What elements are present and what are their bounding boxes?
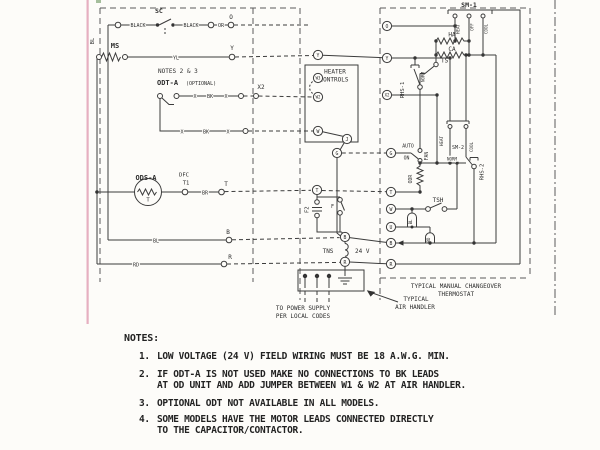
fan-label: FAN [424,152,430,161]
odt-a-label: ODT-A [157,79,179,87]
air-handler-caption-1: TYPICAL [403,296,429,303]
th-terminal-g: G [390,151,393,157]
fuse-f2 [315,200,320,205]
scan-edge-artifact [87,0,89,324]
f2-label: F2 [305,206,311,213]
f-switch [338,198,343,203]
note-text: SOME MODELS HAVE THE MOTOR LEADS CONNECT… [157,414,433,425]
sm1-cool-label: COOL [484,23,489,34]
f-label: F [331,204,334,210]
wire-label-x: X [224,94,227,100]
od-terminal [115,22,121,28]
thermostat-caption-2: THERMOSTAT [438,291,475,298]
terminal-label-r: R [228,254,232,261]
scanned-wiring-diagram-page: { "labels": { "sc": "SC", "black": "BLAC… [0,0,600,450]
note-item-3: 3. OPTIONAL ODT NOT AVAILABLE IN ALL MOD… [139,398,579,409]
scan-mark [96,0,101,3]
ms-label: MS [111,42,119,50]
ah-terminal-r: R [344,260,347,266]
thermostat-section: O Y X2 G T W U B R SM-1 HEAT OFF COOL HA… [350,1,520,298]
dfc-label: DFC [179,173,189,179]
tns-transformer-coil [345,244,348,257]
th-terminal-b: B [390,241,393,247]
odr-label: ODR [408,175,414,184]
note-text: IF ODT-A IS NOT USED MAKE NO CONNECTIONS… [157,369,466,380]
power-caption-1: TO POWER SUPPLY [276,305,331,312]
wire-label-x: X [193,94,196,100]
odt-optional-label: (OPTIONAL) [186,81,216,87]
note-number: 4. [139,414,152,436]
note-number: 1. [139,351,152,362]
terminal-label-t: T [224,181,228,188]
heater-label: HEATER [324,69,346,76]
ah-terminal-w3: W3 [316,76,321,81]
notes-title: NOTES: [124,333,159,344]
note-item-4: 4. SOME MODELS HAVE THE MOTOR LEADS CONN… [139,414,589,436]
wiring-diagram: BL BLACK SC BLACK OR O MS YL Y NOTES 2 &… [0,0,600,324]
terminal-label-x2: X2 [257,84,265,91]
sm1-heat-label: HEAT [456,23,461,34]
wire-label-black: BLACK [130,23,145,29]
section-boundaries [100,0,555,316]
sm2-label: SM-2 [452,145,464,151]
controls-label: CONTROLS [320,77,349,84]
wire-label-bl: BL [153,239,159,245]
terminal-label-y: Y [230,45,234,52]
rhs1-contact [411,58,419,68]
wire-label-rd: RD [133,263,139,269]
bl-lamp-label: BL [408,219,413,224]
sm2-heat-label: HEAT [439,135,444,146]
odr-resistor [417,163,423,192]
note-item-2: 2. IF ODT-A IS NOT USED MAKE NO CONNECTI… [139,369,589,391]
sm1-selector-bracket [448,10,492,14]
rhs1-norm-label: NORM [421,71,426,82]
rhs2-label: RHS-2 [480,164,486,181]
fan-on-label: ON [404,156,410,162]
note-number: 2. [139,369,152,391]
power-terminal-box [298,270,364,291]
sm1-label: SM-1 [461,1,477,9]
air-handler-caption-2: AIR HANDLER [395,304,435,311]
note-number: 3. [139,398,152,409]
th-terminal-o: O [386,24,389,30]
fan-auto-label: AUTO [402,144,414,150]
wire-label-or: OR [218,23,225,29]
sc-switch-blade [159,19,171,25]
ha-label: HA [448,32,456,39]
w3-w2-jumper [310,82,313,94]
24v-label: 24 V [355,248,370,255]
ha-heat-anticipator [436,38,469,44]
wire-label-bk: BK [207,94,213,100]
wire-label-bk: BK [203,130,209,136]
power-caption-2: PER LOCAL CODES [276,313,331,320]
th-terminal-y: Y [386,56,389,62]
wire-label-black: BLACK [183,23,198,29]
sc-switch-label: SC [155,7,163,15]
wire-label-yl: YL [173,56,179,62]
od-unit-section: BL BLACK SC BLACK OR O MS YL Y NOTES 2 &… [90,7,340,269]
note-text: AT OD UNIT AND ADD JUMPER BETWEEN W1 & W… [157,380,466,391]
thermostat-caption-1: TYPICAL MANUAL CHANGEOVER [411,283,502,290]
ts-label: TS [441,58,449,65]
wire-label-x: X [180,130,183,136]
note-item-1: 1. LOW VOLTAGE (24 V) FIELD WIRING MUST … [139,351,579,362]
air-handler-callout-line [371,293,398,303]
odt-notes-ref: NOTES 2 & 3 [158,68,198,75]
terminal-label-b: B [226,229,230,236]
ah-terminal-g: G [336,151,339,157]
tns-label: TNS [323,248,334,255]
ods-a-label: ODS-A [135,174,157,182]
odt-switch-blade [162,98,174,105]
ah-terminal-w: W [317,129,320,135]
ground-symbol [338,278,352,284]
rhs2-contact [466,157,478,165]
th-terminal-t: T [390,190,393,196]
sm1-off-label: OFF [470,23,475,31]
th-terminal-u: U [390,225,393,231]
tsh-label: TSH [433,197,444,204]
th-terminal-w: W [390,207,393,213]
ah-terminal-b: B [344,235,347,241]
wire-label-x: X [226,130,229,136]
ts-switch [434,62,438,66]
sm2-cool-label: COOL [469,141,474,152]
ah-terminal-j: J [346,137,349,143]
b-wire-arrowhead [398,240,404,245]
rhs1-label: RHS-1 [400,82,406,99]
t1-label: T1 [183,181,190,187]
note-text: LOW VOLTAGE (24 V) FIELD WIRING MUST BE … [157,351,450,362]
ah-terminal-t: T [316,188,319,194]
ah-terminal-w2: W2 [316,95,321,100]
ah-terminal-y: Y [317,53,320,59]
th-terminal-r: R [390,262,393,268]
sm2-selector-bracket [447,121,469,124]
th-terminal-x2: X2 [385,93,390,98]
wire-label-br: BR [202,190,209,196]
note-text: OPTIONAL ODT NOT AVAILABLE IN ALL MODELS… [157,398,379,409]
note-text: TO THE CAPACITOR/CONTACTOR. [157,425,433,436]
terminal-label-o: O [229,14,233,21]
wire-label-bl-vertical: BL [90,37,96,44]
rhs2-norm-label: NORM [447,157,458,162]
ms-switch [102,53,121,61]
tsh-switch [426,207,431,212]
